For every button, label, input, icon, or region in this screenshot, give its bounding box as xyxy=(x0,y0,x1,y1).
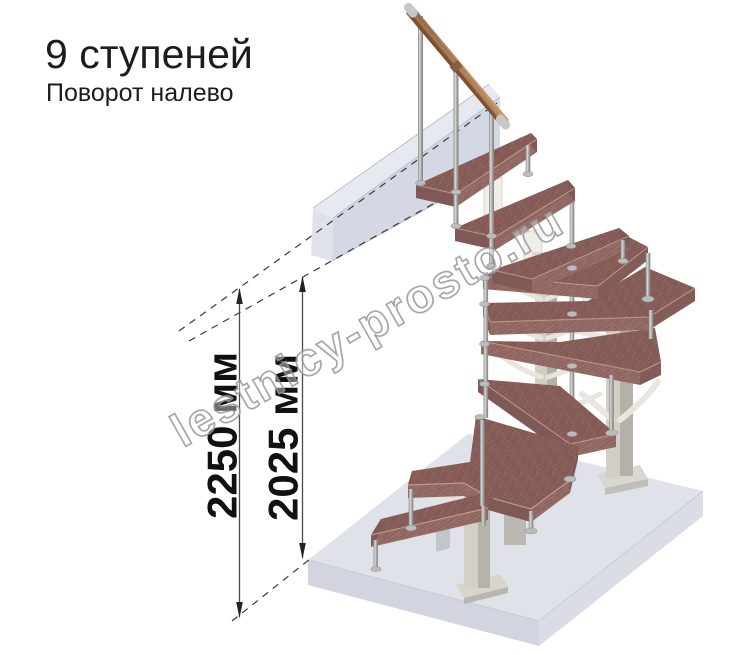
svg-text:Поворот налево: Поворот налево xyxy=(46,79,234,107)
svg-text:9 ступеней: 9 ступеней xyxy=(45,31,253,77)
